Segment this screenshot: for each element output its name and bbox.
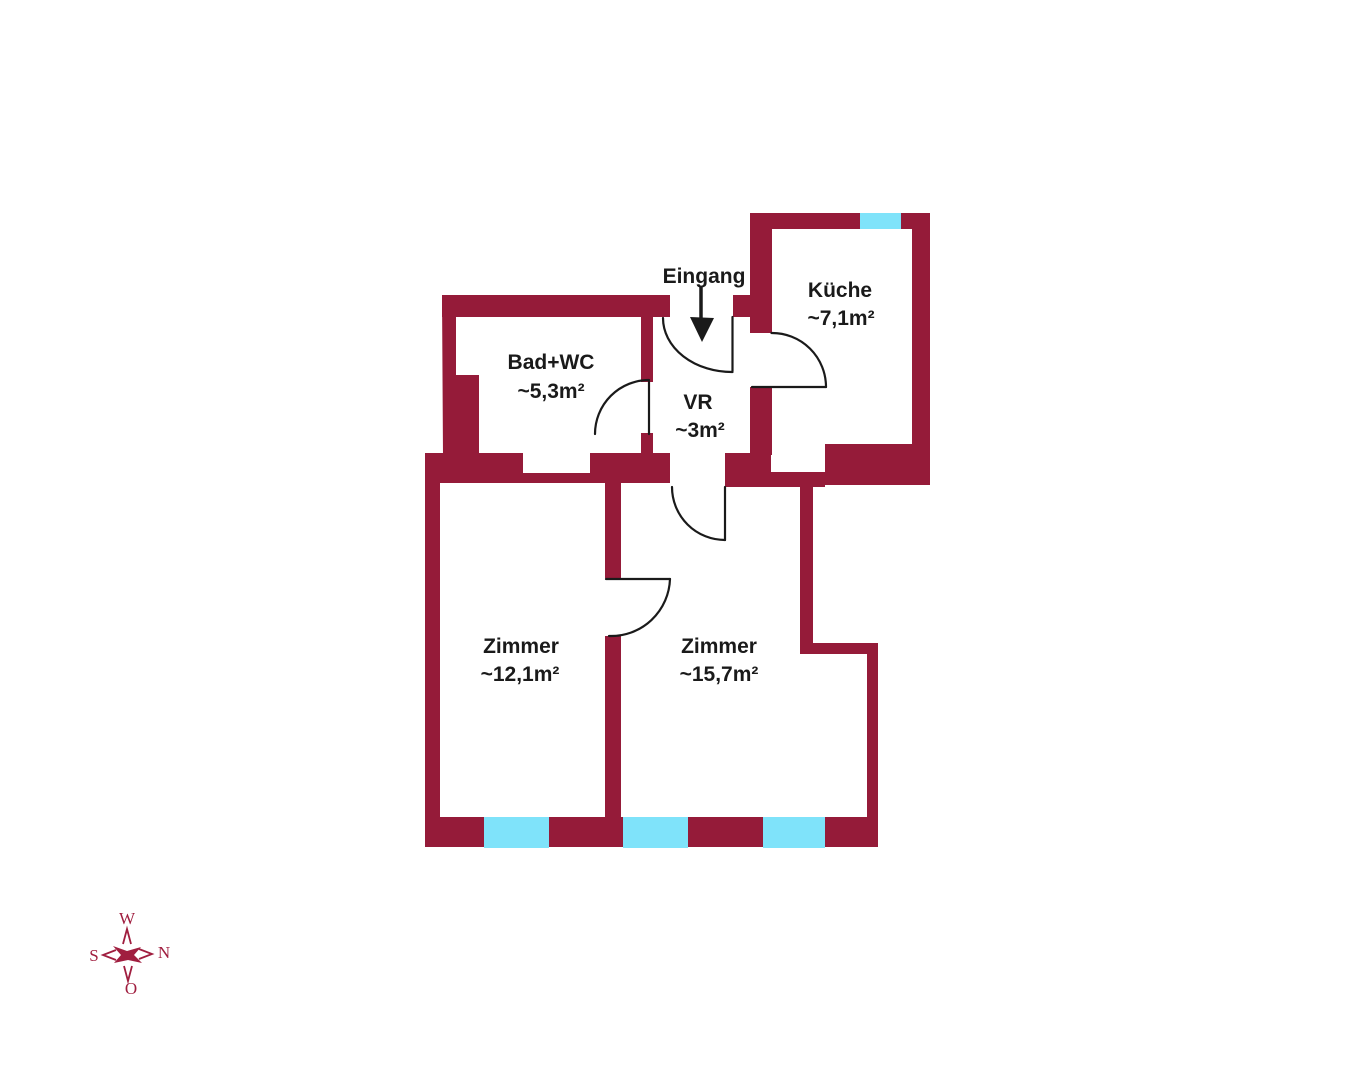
window-zimmer-ost-2 [763,817,825,848]
wall-left-outer [425,453,440,847]
compass-star-icon [113,946,142,963]
window-kueche [860,213,901,229]
window-zimmer-west [484,817,549,848]
room-vr-label: VR ~3m² [675,391,725,442]
room-badwc-area: ~5,3m² [517,380,584,403]
wall-band-notch [523,473,590,483]
room-badwc-label: Bad+WC ~5,3m² [508,351,595,403]
compass-letter-right: N [158,943,170,962]
room-vr-name: VR [683,391,712,414]
compass-spike-up-icon [123,929,131,944]
wall-badwc-right-upper [641,317,653,382]
compass-spike-left-icon [103,950,116,960]
wall-kueche-left-upper [750,218,772,333]
entrance-arrow-head [690,317,714,342]
compass-letter-bottom: O [125,979,137,998]
wall-kueche-left-lower [750,387,772,455]
room-kueche-name: Küche [808,279,872,302]
wall-east-upper [800,483,813,643]
wall-badwc-left [442,295,479,456]
wall-zimmer-divider-lower [605,636,621,817]
room-zimmer-west-name: Zimmer [483,635,559,658]
floorplan-canvas: Eingang Küche ~7,1m² Bad+WC ~5,3m² VR ~3… [0,0,1345,1080]
room-vr-area: ~3m² [675,419,725,442]
wall-east-lower [867,654,878,817]
wall-bottom-seg2 [549,817,623,847]
room-kueche-area: ~7,1m² [807,307,874,330]
door-badwc-arc [595,380,649,434]
wall-top-badwc-vr [442,295,670,317]
floor-plan: Eingang Küche ~7,1m² Bad+WC ~5,3m² VR ~3… [0,0,1345,1080]
wall-kueche-bottom [825,444,930,485]
compass-letter-top: W [119,909,136,928]
wall-zimmer-divider-upper [605,483,621,578]
wall-bottom-seg4 [825,817,878,847]
door-kueche-arc [772,333,827,387]
compass-spike-right-icon [139,949,152,959]
room-zimmer-ost-area: ~15,7m² [680,663,759,686]
window-zimmer-ost-1 [623,817,688,848]
room-zimmer-ost-name: Zimmer [681,635,757,658]
compass-letter-left: S [89,946,98,965]
door-zimmer-zimmer-arc [609,579,670,636]
room-zimmer-west-area: ~12,1m² [481,663,560,686]
door-zimmer-ost-arc [672,487,725,540]
room-zimmer-west-label: Zimmer ~12,1m² [481,635,560,686]
wall-kueche-niche-bottom [760,472,825,487]
wall-east-step [800,643,878,654]
room-badwc-name: Bad+WC [508,351,595,374]
room-zimmer-ost-label: Zimmer ~15,7m² [680,635,759,686]
wall-bottom-seg3 [688,817,763,847]
wall-bottom-seg1 [425,817,484,847]
compass-rose: W N S O [89,909,170,998]
entrance-arrow [690,287,714,342]
entrance-label: Eingang [663,265,746,288]
room-kueche-label: Küche ~7,1m² [807,279,874,330]
wall-band-east [590,453,670,483]
wall-entrance-right-jamb [733,295,750,317]
